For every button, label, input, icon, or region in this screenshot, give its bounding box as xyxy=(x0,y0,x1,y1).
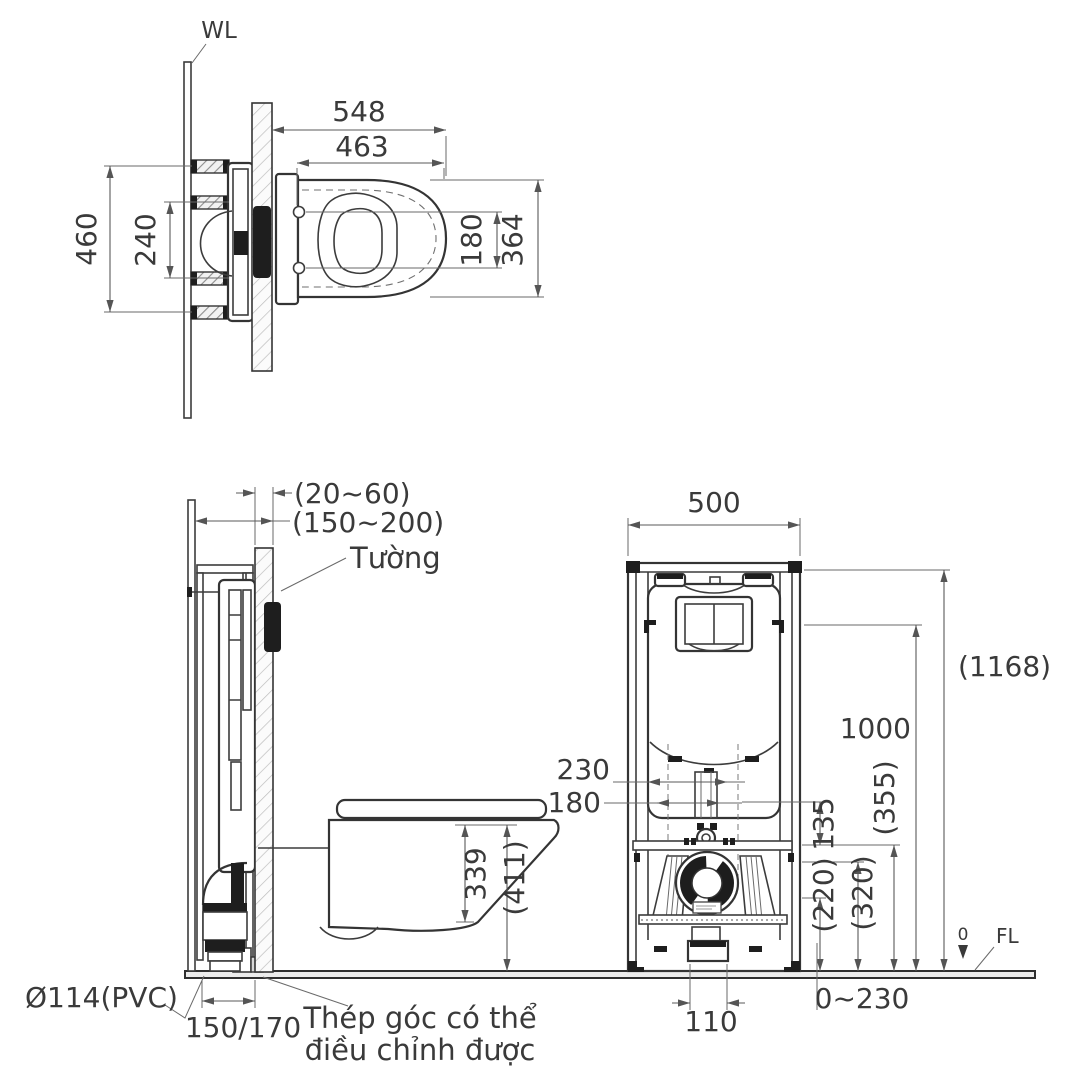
dim-135: 135 xyxy=(807,797,840,850)
fixing-bolt-hole-top xyxy=(294,207,305,218)
dim-1168: (1168) xyxy=(958,650,1051,683)
wall-line xyxy=(184,62,191,418)
dim-548: 548 xyxy=(332,95,385,128)
wall-line-leader xyxy=(192,44,206,63)
technical-drawing-page: WL xyxy=(0,0,1090,1090)
floor-line xyxy=(185,971,1035,978)
dim-0-230: 0~230 xyxy=(815,982,910,1015)
drain-elbow xyxy=(203,863,247,971)
wall-label: Tường xyxy=(349,541,441,575)
wall-line-label: WL xyxy=(201,18,237,44)
drain-pipe-label: Ø114(PVC) xyxy=(25,981,178,1014)
toilet-installation-drawing: WL xyxy=(0,0,1090,1090)
front-view: 500 (1168) 1000 (355) (320) 135 (220) 23… xyxy=(548,486,1052,1038)
wall-line-side xyxy=(188,500,195,971)
dim-180-front: 180 xyxy=(548,786,601,819)
dim-463: 463 xyxy=(335,130,388,163)
flush-plate-plan xyxy=(253,206,271,278)
cistern-front xyxy=(644,574,784,818)
flush-plate-side xyxy=(264,602,281,652)
dim-230: 230 xyxy=(557,753,610,786)
dim-150-170: 150/170 xyxy=(185,1011,301,1044)
floor-zero-label: 0 xyxy=(958,925,969,945)
cistern-side xyxy=(219,580,255,872)
zero-datum-arrow xyxy=(958,945,968,959)
dim-220: (220) xyxy=(807,857,840,932)
dim-150-200: (150~200) xyxy=(292,506,444,539)
dim-240: 240 xyxy=(129,213,162,266)
drain-size-tag xyxy=(693,902,721,913)
mounting-brackets xyxy=(191,160,229,319)
dim-364: 364 xyxy=(496,213,529,266)
top-view: WL xyxy=(70,18,544,418)
dim-339: 339 xyxy=(459,847,492,900)
dim-110: 110 xyxy=(684,1005,737,1038)
bracket-note-line2: điều chỉnh được xyxy=(305,1033,536,1067)
dim-355: (355) xyxy=(868,760,901,835)
dim-320: (320) xyxy=(846,855,879,930)
bracket-note-line1: Thép góc có thể xyxy=(302,1001,537,1035)
dim-460: 460 xyxy=(70,212,103,265)
dim-1000: 1000 xyxy=(840,712,911,745)
seat-lid xyxy=(337,800,546,818)
dim-411: (411) xyxy=(498,840,531,915)
toilet-bowl-plan xyxy=(276,174,446,304)
dim-180-top: 180 xyxy=(455,213,488,266)
frame-rail-plan xyxy=(201,163,254,321)
dim-500: 500 xyxy=(687,486,740,519)
fixing-bolt-hole-bottom xyxy=(294,263,305,274)
floor-line-label: FL xyxy=(996,924,1020,948)
